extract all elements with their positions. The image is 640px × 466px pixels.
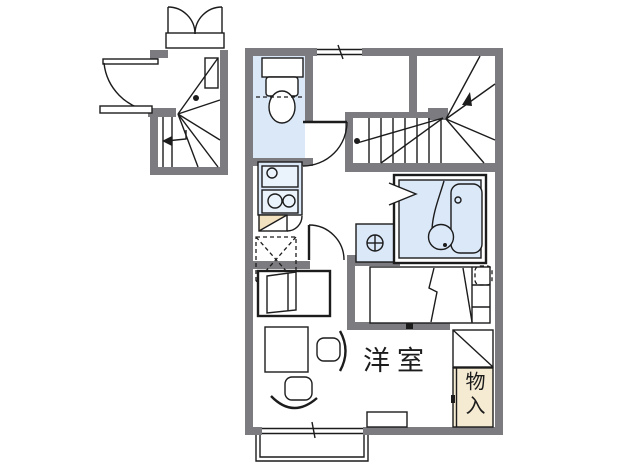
balcony-icon [256,435,368,461]
entrance-swing-door-icon [100,59,158,113]
staircase-2f-icon [354,56,495,163]
direction-arrow-icon [462,92,472,106]
counter-ledge-icon [367,412,407,427]
closet-handle [451,395,455,403]
toilet-shelf [262,58,303,77]
floorplan-canvas: 洋室 物入 [0,0,640,466]
entrance-block [100,7,228,175]
toilet-icon [266,77,298,123]
washbasin-icon [429,225,454,250]
floorplan-drawing [0,0,640,466]
table-icon [265,327,308,372]
kitchen-sink-icon [262,166,298,187]
bathtub-icon [451,184,482,253]
shelf-icon [453,330,493,367]
unit-bath [389,175,486,263]
chair-icon [271,377,317,408]
gas-stove-icon [262,190,298,213]
western-room-label: 洋室 [363,339,431,378]
bed-icon [370,266,492,323]
interior-door-icon [309,225,344,260]
wall-post [406,323,413,329]
direction-arrow-icon [162,130,186,146]
washing-machine-space-icon [356,224,395,262]
chair-icon [317,331,346,371]
entrance-double-door-icon [166,7,224,48]
hall-window-icon [317,45,362,59]
counter-ledge-icon [259,215,302,231]
sliding-window-icon [262,422,363,438]
storage-label: 物入 [459,371,488,419]
tv-stand-icon [258,271,330,316]
